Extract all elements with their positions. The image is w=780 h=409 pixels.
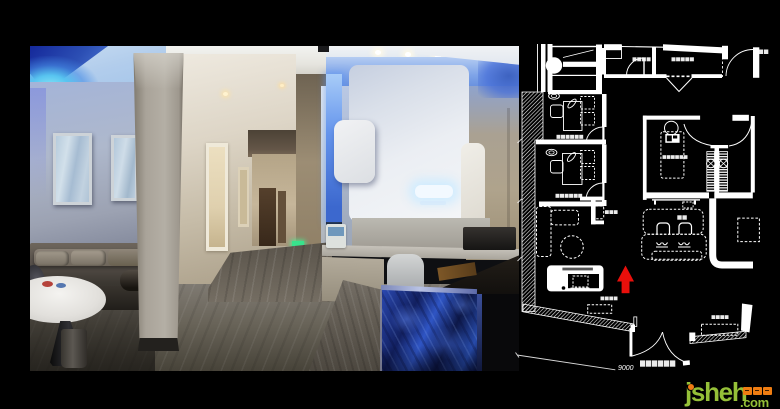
svg-text:9000: 9000 [618,365,634,372]
